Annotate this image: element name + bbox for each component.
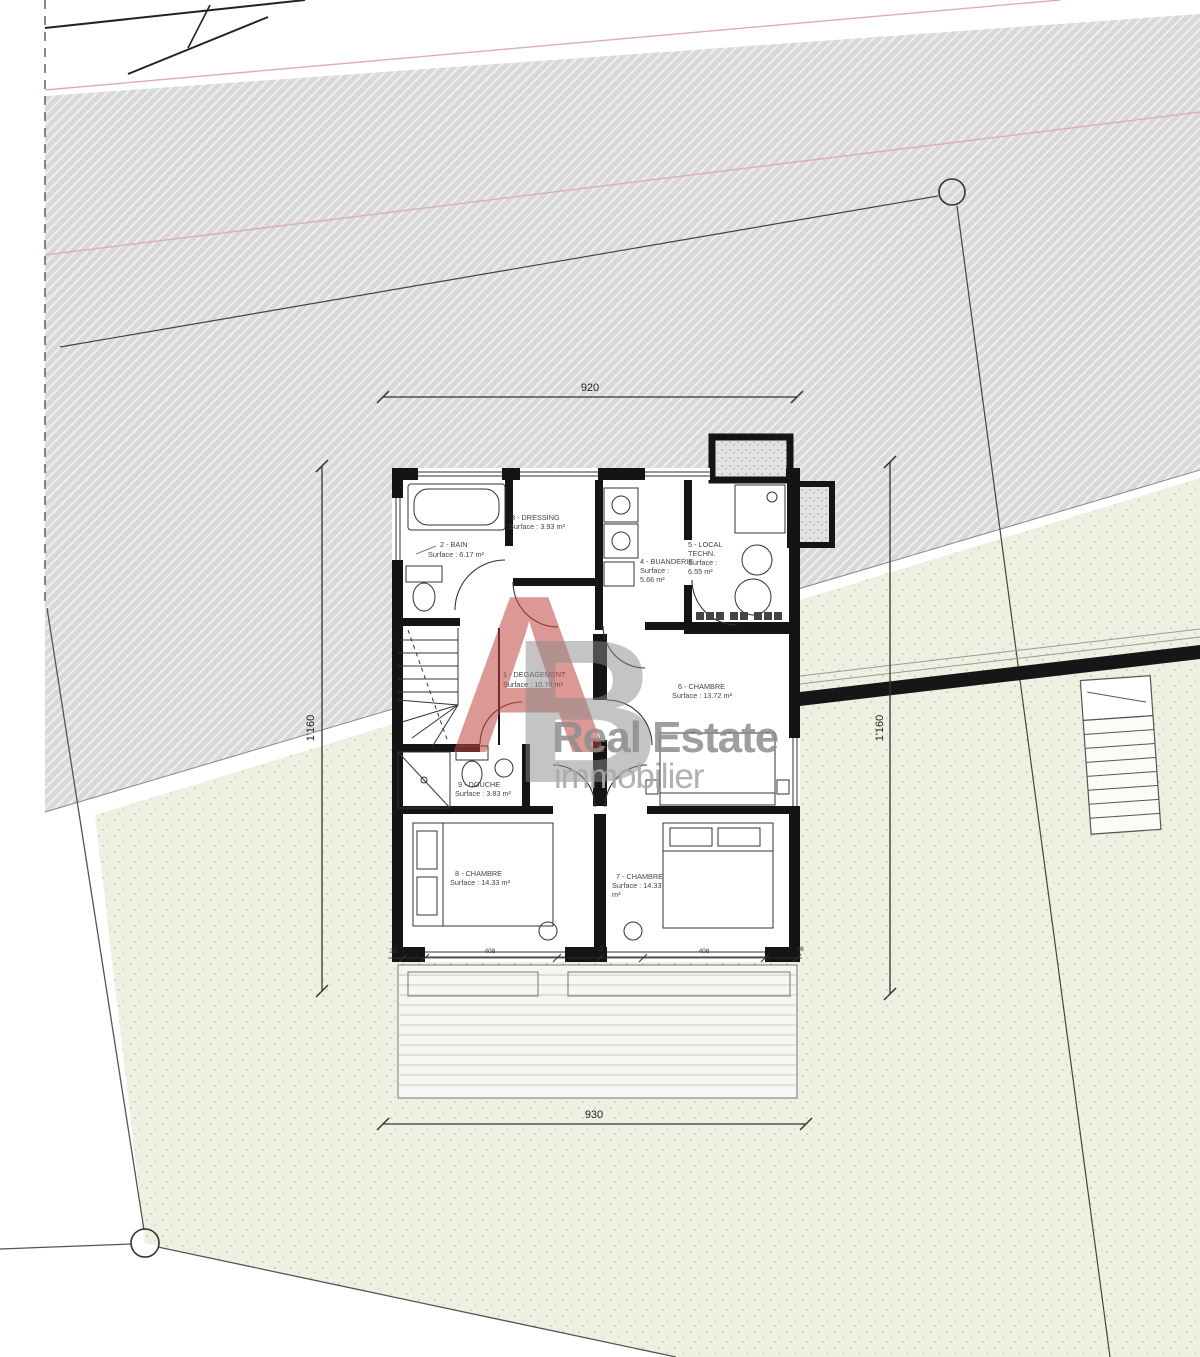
svg-text:1'160: 1'160 [874,715,886,742]
svg-text:7 - CHAMBRE: 7 - CHAMBRE [616,872,663,881]
window-top-3 [645,468,710,480]
svg-text:3 - DRESSING: 3 - DRESSING [511,513,560,522]
window-east-bedroom6 [789,738,800,806]
svg-text:4 - BUANDERIE: 4 - BUANDERIE [640,557,693,566]
svg-text:5.66 m²: 5.66 m² [640,575,665,584]
window-top-2 [520,468,598,480]
svg-text:m²: m² [612,890,621,899]
watermark-subtitle: immobilier [554,757,705,796]
svg-text:36: 36 [796,946,804,953]
svg-text:6 - CHAMBRE: 6 - CHAMBRE [678,682,725,691]
window-top-1 [418,468,502,480]
floor-plan-page: 2 - BAIN Surface : 6.17 m² 3 - DRESSING … [0,0,1200,1357]
svg-text:1'160: 1'160 [305,715,317,742]
svg-text:408: 408 [699,948,710,955]
floor-plan-drawing: 2 - BAIN Surface : 6.17 m² 3 - DRESSING … [0,0,1200,1357]
entry-porch [712,437,790,480]
road-line-2 [128,17,268,74]
south-west-line [0,1244,131,1249]
external-staircase [1080,676,1161,835]
svg-text:Surface : 14.33: Surface : 14.33 [612,881,662,890]
stair-landing [1080,676,1153,721]
svg-text:Surface : 14.33 m²: Surface : 14.33 m² [450,878,511,887]
svg-text:Surface :: Surface : [640,566,669,575]
svg-text:408: 408 [485,948,496,955]
svg-text:Surface :: Surface : [688,558,717,567]
window-west-bath [392,498,403,560]
svg-text:Surface : 3.93 m²: Surface : 3.93 m² [509,522,566,531]
svg-text:15: 15 [596,946,604,953]
watermark-brand: Real Estate [552,713,778,762]
svg-text:Surface : 13.72 m²: Surface : 13.72 m² [672,691,733,700]
svg-text:5 - LOCAL: 5 - LOCAL [688,540,722,549]
svg-text:6.55 m²: 6.55 m² [688,567,713,576]
window-south-right [607,947,765,962]
svg-text:930: 930 [585,1109,603,1121]
svg-text:TECHN.: TECHN. [688,549,715,558]
label-dressing: 3 - DRESSING Surface : 3.93 m² [509,513,566,531]
svg-text:8 - CHAMBRE: 8 - CHAMBRE [455,869,502,878]
label-bedroom8: 8 - CHAMBRE Surface : 14.33 m² [450,869,511,887]
label-bedroom6: 6 - CHAMBRE Surface : 13.72 m² [672,682,733,700]
svg-text:920: 920 [581,382,599,394]
svg-text:28: 28 [389,948,397,955]
road-line-1 [45,0,305,28]
terrace-deck [398,965,797,1098]
